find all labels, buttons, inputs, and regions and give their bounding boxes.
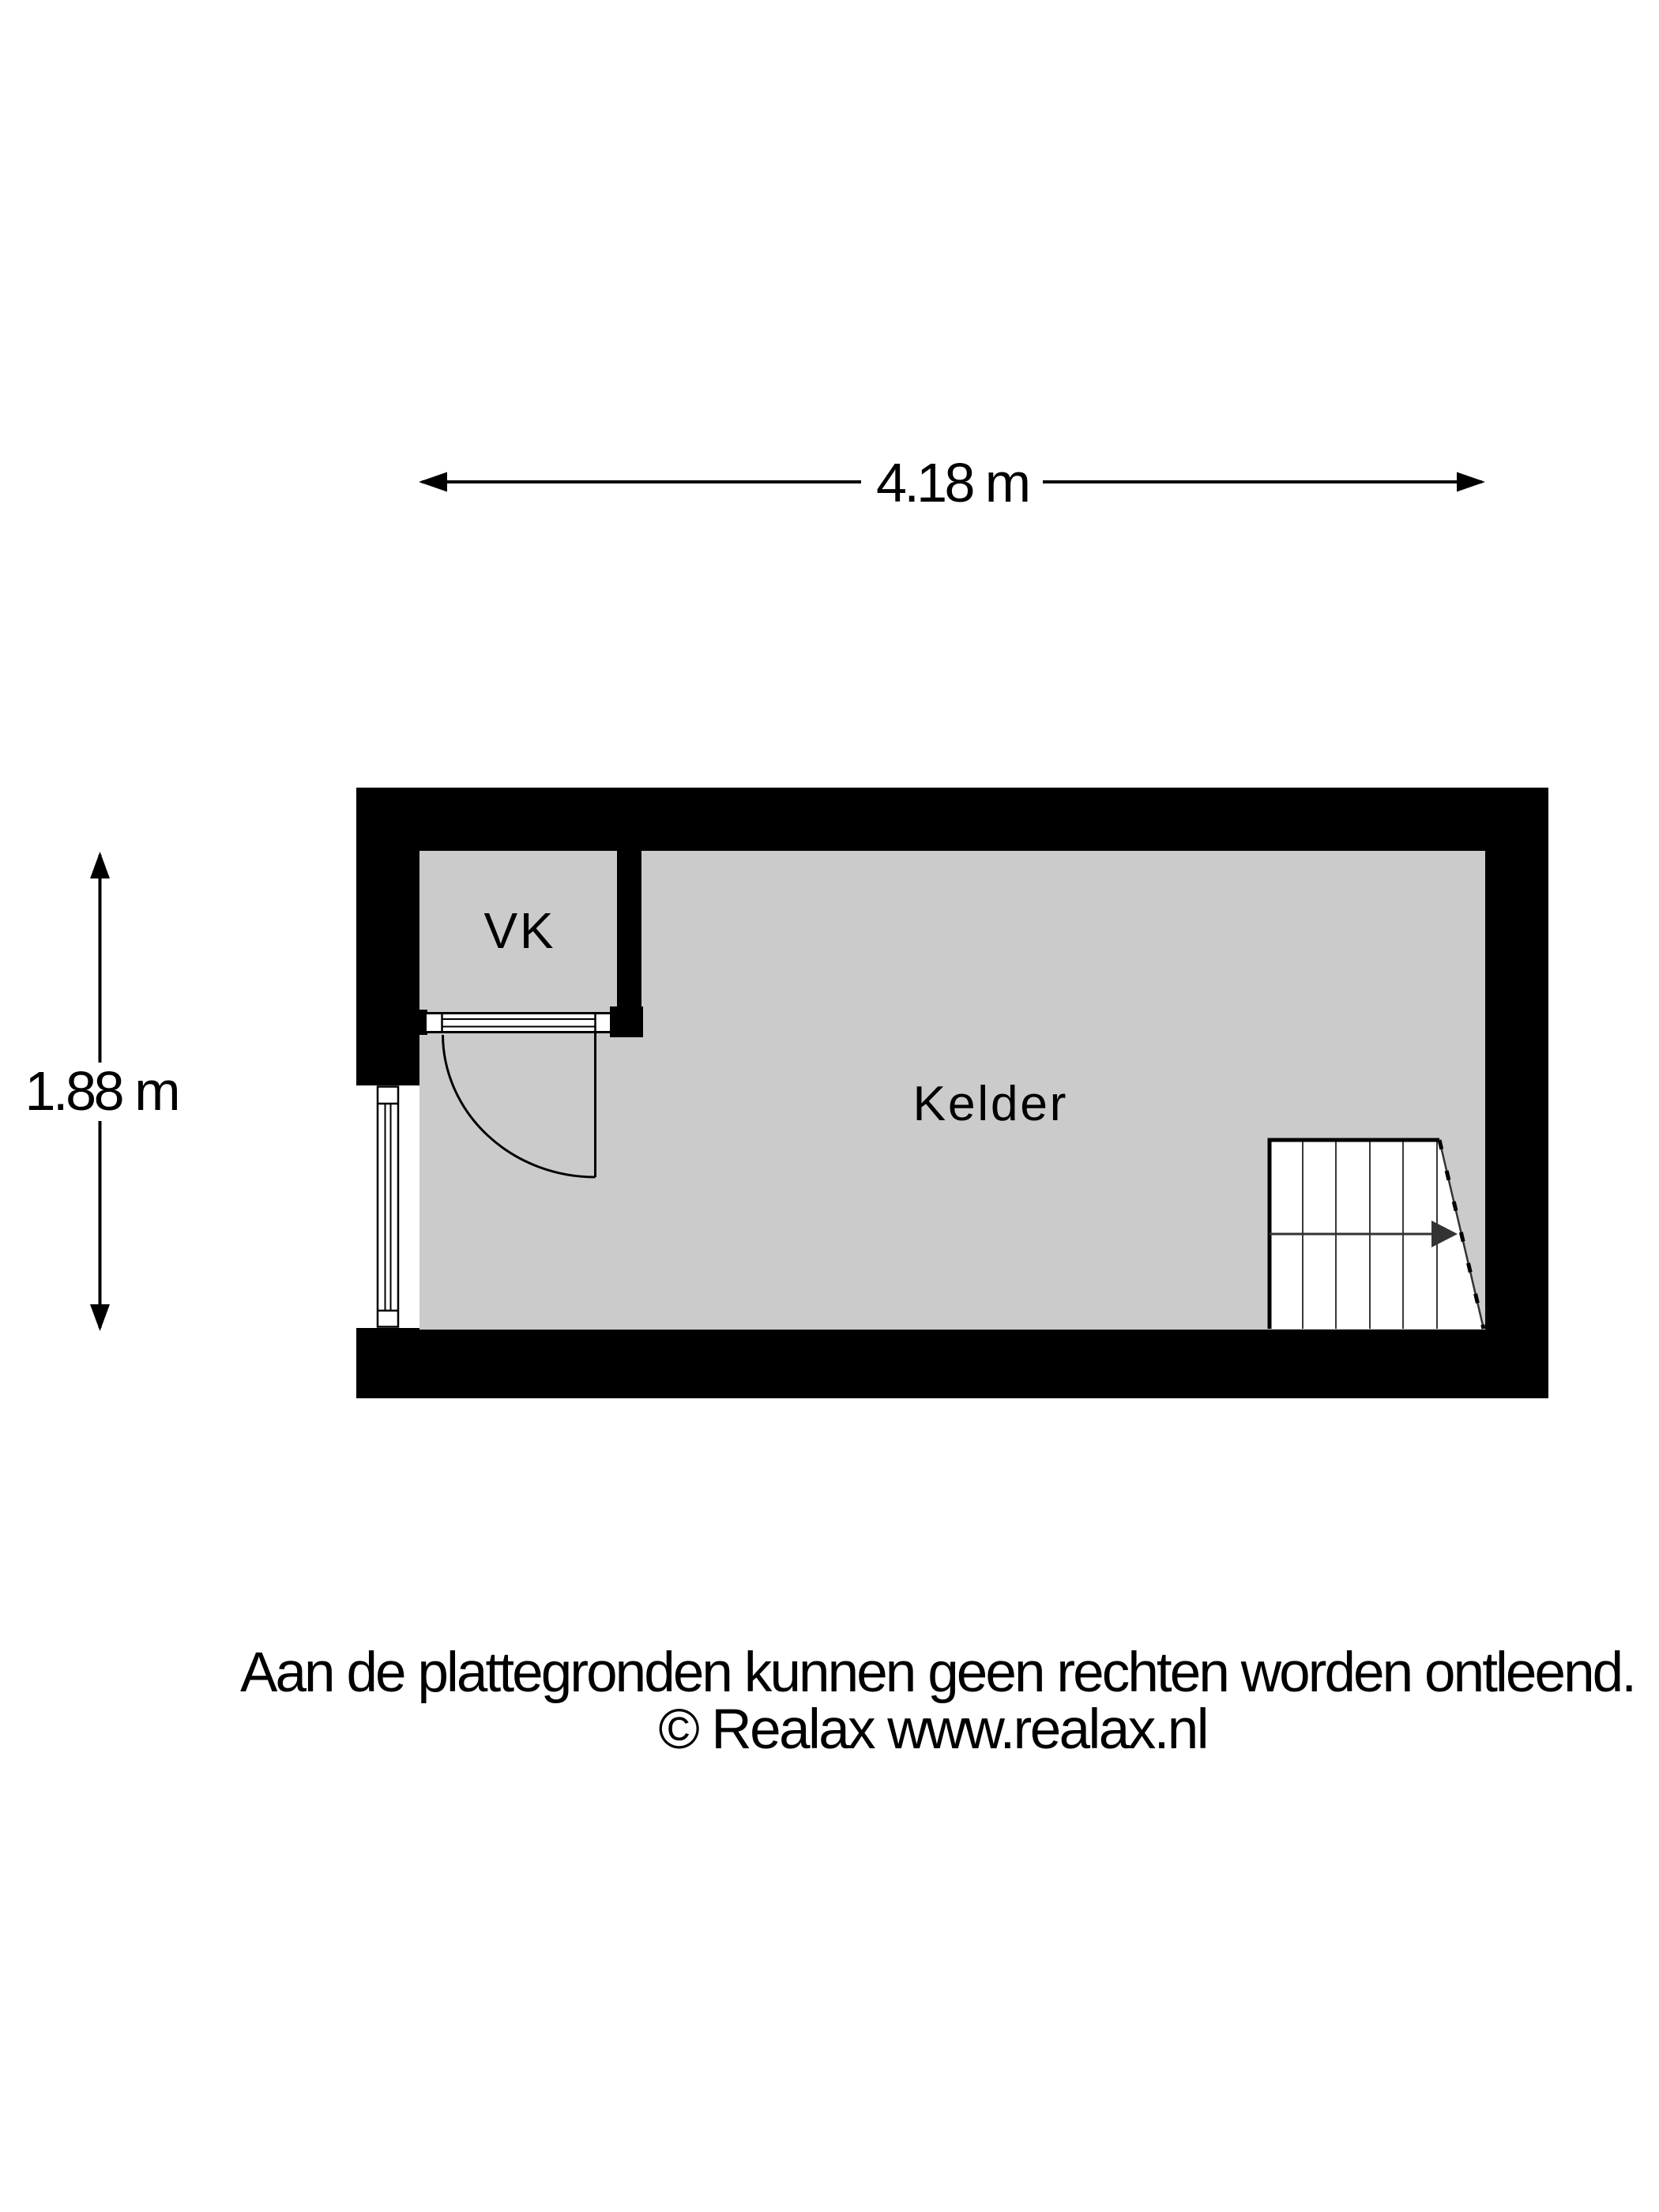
- svg-text:4.18 m: 4.18 m: [876, 452, 1031, 513]
- svg-text:1.88 m: 1.88 m: [25, 1060, 181, 1122]
- svg-text:Aan de plattegronden kunnen ge: Aan de plattegronden kunnen geen rechten…: [240, 1642, 1637, 1704]
- svg-text:© Realax www.realax.nl: © Realax www.realax.nl: [659, 1698, 1209, 1761]
